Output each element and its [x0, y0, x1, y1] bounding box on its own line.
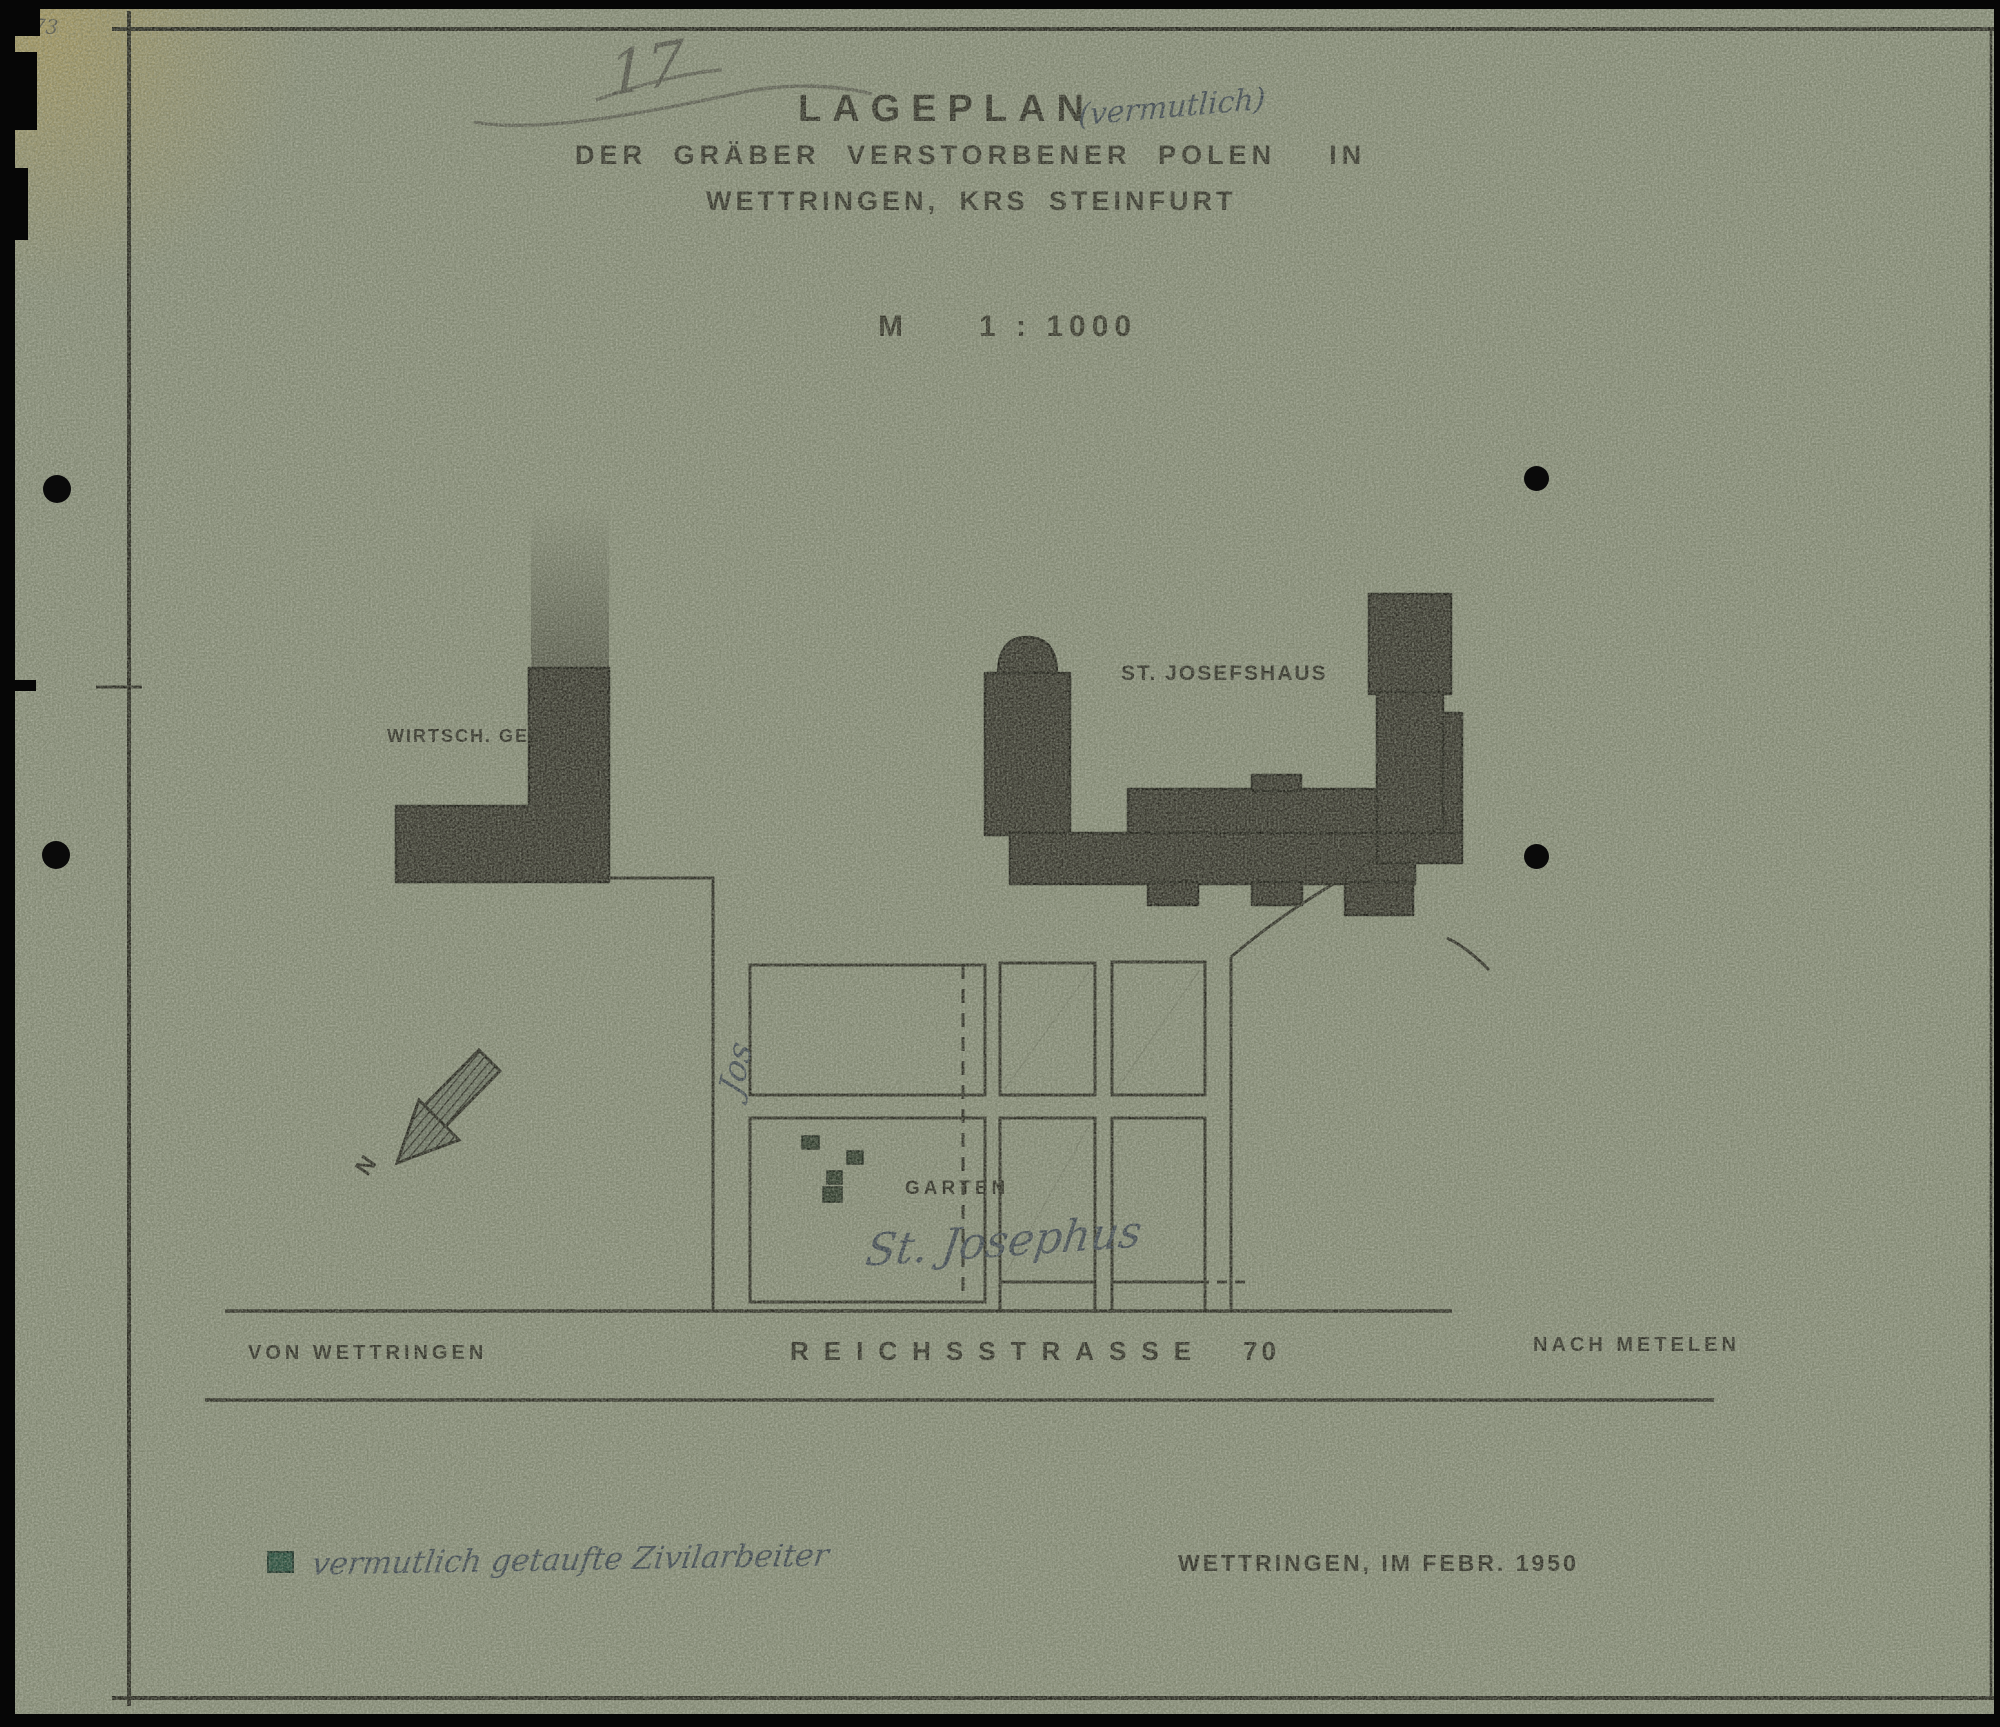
- road-name-label: REICHSSTRASSE: [790, 1336, 1206, 1367]
- punch-hole: [42, 841, 70, 869]
- punch-hole: [43, 475, 71, 503]
- punch-hole: [1524, 466, 1549, 491]
- legend-text: vermutlich getaufte Zivilarbeiter: [309, 1537, 831, 1582]
- title-line2: DER GRÄBER VERSTORBENER POLEN IN: [575, 140, 1366, 171]
- road-to-label: NACH METELEN: [1533, 1334, 1740, 1357]
- title-handwritten-annotation: (vermutlich): [1077, 82, 1266, 134]
- page-title: LAGEPLAN: [798, 88, 1095, 131]
- road-number-label: 70: [1243, 1336, 1280, 1367]
- title-line3: WETTRINGEN, KRS STEINFURT: [706, 186, 1237, 217]
- date-line: WETTRINGEN, IM FEBR. 1950: [1178, 1550, 1579, 1577]
- garden-handwritten-name: St. Josephus: [863, 1206, 1146, 1277]
- sheet-number-handwritten: 17: [609, 27, 684, 111]
- scale-label: M: [878, 310, 909, 343]
- scan-edge-right: [1994, 0, 2000, 1727]
- scan-edge-tab: [0, 168, 28, 240]
- scan-edge-corner: [0, 0, 40, 36]
- scale-value: 1 : 1000: [979, 310, 1137, 343]
- scan-edge-top: [0, 0, 2000, 9]
- labels-layer: 473 17 LAGEPLAN (vermutlich) DER GRÄBER …: [0, 0, 2000, 1727]
- scan-edge-left: [0, 0, 15, 1727]
- scale-text: M1 : 1000: [792, 276, 1137, 378]
- garden-label: GARTEN: [905, 1178, 1009, 1200]
- scan-edge-tab: [0, 52, 37, 130]
- north-label: N: [350, 1151, 383, 1181]
- building-left-label: WIRTSCH. GEB.: [387, 726, 551, 747]
- punch-hole: [1524, 844, 1549, 869]
- vertical-handwritten-mark: Jos: [712, 1036, 760, 1102]
- scan-edge-bottom: [0, 1714, 2000, 1727]
- scanned-site-plan: 473 17 LAGEPLAN (vermutlich) DER GRÄBER …: [0, 0, 2000, 1727]
- road-from-label: VON WETTRINGEN: [248, 1342, 487, 1365]
- scan-edge-notch: [0, 680, 36, 691]
- building-right-label: ST. JOSEFSHAUS: [1121, 662, 1328, 686]
